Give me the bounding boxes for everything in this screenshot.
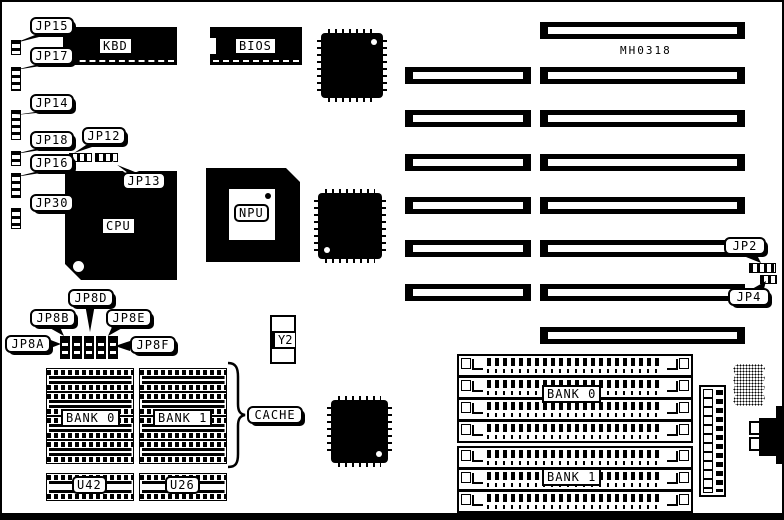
simm-contacts	[487, 449, 663, 466]
dram-bank0-label: BANK 0	[61, 409, 120, 427]
jp13-callout: JP13	[122, 172, 166, 190]
cache-brace	[228, 363, 245, 467]
chip-dashed-line	[213, 60, 299, 62]
y2-label: Y2	[274, 332, 296, 348]
chip-dashed-line	[60, 60, 174, 62]
jp14-jumper	[11, 110, 21, 140]
isa-slot	[405, 67, 531, 84]
simm-bracket	[472, 473, 483, 484]
isa-slot	[540, 327, 745, 344]
speaker	[733, 364, 765, 406]
simm-bracket	[472, 451, 483, 462]
bios-chip-label: BIOS	[235, 38, 276, 54]
chip-notch	[210, 38, 216, 54]
qfp-chip-middle	[318, 193, 382, 259]
jp15-jumper	[11, 40, 21, 55]
pin-row	[383, 40, 387, 91]
isa-slot	[540, 67, 745, 84]
jp8d-callout: JP8D	[68, 289, 114, 307]
simm-latch	[461, 424, 471, 435]
pin-row	[382, 200, 386, 252]
simm-latch	[461, 472, 471, 483]
motherboard-diagram: KBD BIOS NPU CPU Y2	[0, 0, 784, 520]
simm-latch	[679, 450, 689, 461]
jp8e-callout: JP8E	[106, 309, 152, 327]
connector-cells	[703, 389, 713, 493]
pin-row	[328, 98, 376, 102]
jp8-jumper-1	[60, 336, 70, 359]
isa-slot	[540, 197, 745, 214]
jp16-callout: JP16	[30, 154, 74, 172]
pin-row	[317, 40, 321, 91]
cache-callout: CACHE	[247, 406, 303, 424]
jp8-jumper-5	[108, 336, 118, 359]
jp18-jumper	[11, 151, 21, 166]
cpu-chip-label: CPU	[102, 218, 135, 234]
jp8f-callout: JP8F	[130, 336, 176, 354]
simm-contacts	[487, 357, 663, 374]
simm-socket	[457, 354, 693, 377]
simm-bank1-label: BANK 1	[542, 468, 601, 486]
board-bottom-border	[2, 513, 782, 518]
jp13-jumper	[95, 153, 118, 162]
pin-row	[388, 407, 392, 456]
board-model-text: MH0318	[620, 44, 672, 57]
simm-socket	[457, 420, 693, 443]
jp17-callout: JP17	[30, 47, 74, 65]
pin1-dot	[324, 247, 330, 253]
dram-chip	[139, 368, 227, 392]
npu-chip-label: NPU	[234, 204, 269, 222]
isa-slot	[405, 240, 531, 257]
pin1-dot	[376, 451, 382, 457]
simm-bracket	[667, 425, 678, 436]
jp8-jumper-2	[72, 336, 82, 359]
simm-latch	[679, 424, 689, 435]
simm-latch	[461, 380, 471, 391]
pin-row	[325, 189, 375, 193]
pin1-dot	[371, 39, 377, 45]
jp12-callout: JP12	[82, 127, 126, 145]
simm-bracket	[472, 495, 483, 506]
jp2-callout: JP2	[724, 237, 766, 255]
jp8-jumper-3	[84, 336, 94, 359]
simm-socket	[457, 446, 693, 469]
jp30-jumper	[11, 208, 21, 229]
jp30-callout: JP30	[30, 194, 74, 212]
dram-chip	[46, 368, 134, 392]
power-connector	[699, 385, 726, 497]
simm-bracket	[667, 451, 678, 462]
kbd-chip-label: KBD	[99, 38, 132, 54]
simm-latch	[461, 402, 471, 413]
keyboard-connector-body	[759, 418, 779, 456]
pin1-dot	[73, 261, 84, 272]
pin-row	[314, 200, 318, 252]
keyboard-connector-pin	[749, 421, 761, 435]
qfp-chip-top	[321, 33, 383, 98]
simm-bank0-label: BANK 0	[542, 385, 601, 403]
jp18-callout: JP18	[30, 131, 74, 149]
dram-chip	[46, 440, 134, 464]
u42-label: U42	[72, 476, 107, 494]
jp8-jumper-4	[96, 336, 106, 359]
simm-bracket	[667, 403, 678, 414]
simm-bracket	[472, 359, 483, 370]
jp15-callout: JP15	[30, 17, 74, 35]
jp4-jumper	[760, 275, 777, 284]
isa-slot	[540, 22, 745, 39]
jp14-callout: JP14	[30, 94, 74, 112]
isa-slot	[540, 110, 745, 127]
simm-latch	[679, 494, 689, 505]
isa-slot	[405, 197, 531, 214]
jp8a-callout: JP8A	[5, 335, 51, 353]
simm-bracket	[472, 403, 483, 414]
pin-row	[328, 29, 376, 33]
isa-slot	[405, 284, 531, 301]
simm-latch	[679, 380, 689, 391]
simm-bracket	[472, 425, 483, 436]
simm-latch	[679, 472, 689, 483]
simm-contacts	[487, 401, 663, 418]
isa-slot	[405, 110, 531, 127]
dram-chip	[139, 440, 227, 464]
isa-slot	[405, 154, 531, 171]
simm-bracket	[667, 473, 678, 484]
isa-slot	[540, 240, 745, 257]
pin-row	[327, 407, 331, 456]
jp16-jumper	[11, 173, 21, 198]
isa-slot	[540, 154, 745, 171]
pin-row	[338, 396, 381, 400]
simm-latch	[461, 358, 471, 369]
simm-contacts	[487, 423, 663, 440]
simm-socket	[457, 490, 693, 513]
simm-bracket	[472, 381, 483, 392]
simm-latch	[461, 450, 471, 461]
jp4-callout: JP4	[728, 288, 770, 306]
pin-row	[338, 463, 381, 467]
simm-latch	[679, 358, 689, 369]
connector-pins	[716, 390, 723, 492]
simm-latch	[679, 402, 689, 413]
isa-slot	[540, 284, 745, 301]
simm-latch	[461, 494, 471, 505]
simm-bracket	[667, 381, 678, 392]
simm-contacts	[487, 493, 663, 510]
keyboard-connector-pin	[749, 437, 761, 451]
pin1-dot	[265, 193, 271, 199]
dram-bank1-label: BANK 1	[153, 409, 212, 427]
jp2-jumper	[749, 263, 776, 273]
u26-label: U26	[165, 476, 200, 494]
qfp-chip-bottom	[331, 400, 388, 463]
simm-bracket	[667, 359, 678, 370]
jp8b-callout: JP8B	[30, 309, 76, 327]
pin-row	[325, 259, 375, 263]
simm-bracket	[667, 495, 678, 506]
jp17-jumper	[11, 67, 21, 91]
